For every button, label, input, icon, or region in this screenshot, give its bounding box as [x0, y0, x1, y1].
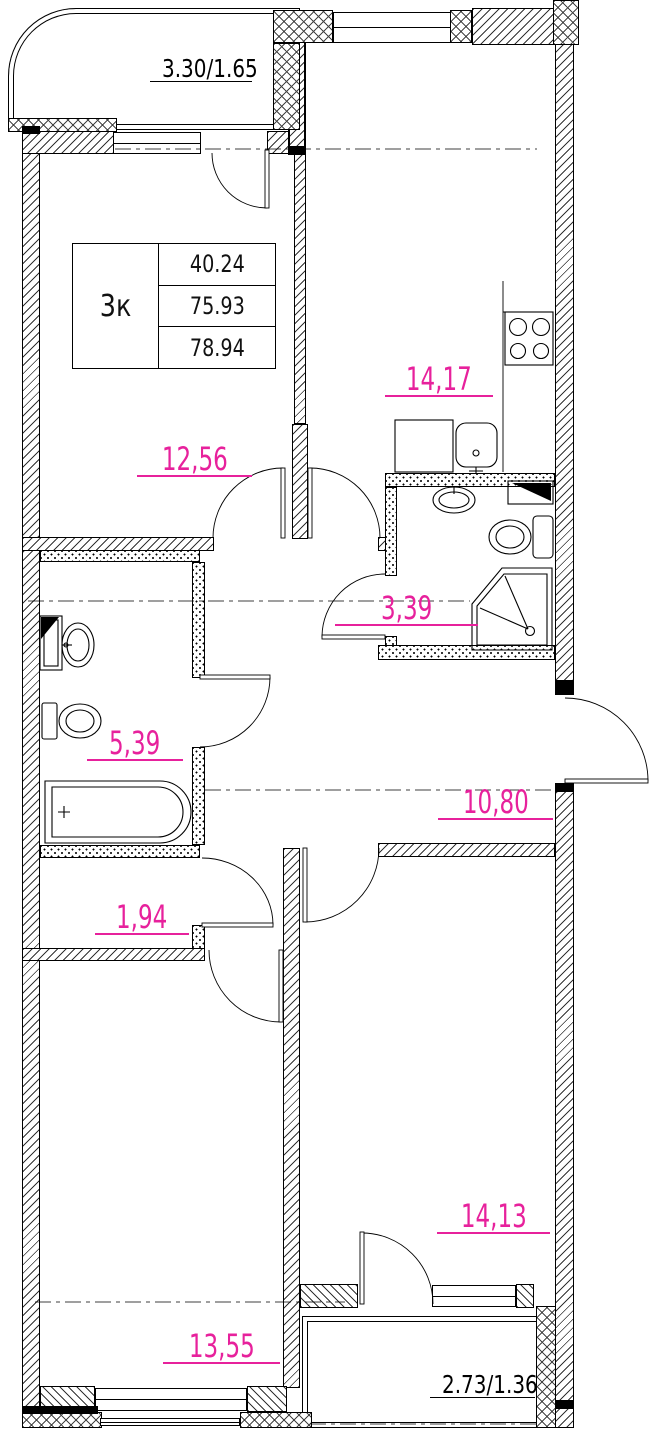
cabinet-icon	[395, 420, 453, 472]
area-label-balcony-bottom: 2.73/1.36	[430, 1372, 535, 1398]
area-label-kitchen: 14,17	[385, 363, 493, 397]
area-label-closet: 1,94	[95, 901, 189, 935]
door-kitchen	[308, 468, 380, 538]
door-balcony-top	[212, 150, 269, 208]
table-row: 75.93	[159, 286, 275, 328]
kitchen-counter-line	[503, 281, 553, 472]
door-bedroom-left	[209, 950, 283, 1022]
unit-info-table: 3к 40.24 75.93 78.94	[72, 243, 276, 369]
unit-type-label: 3к	[100, 289, 132, 324]
area-label-hall: 10,80	[438, 786, 553, 820]
area-label-living: 12,56	[137, 443, 252, 477]
toilet-icon	[489, 516, 553, 558]
door-living	[213, 468, 285, 538]
shower-tray-icon	[472, 568, 552, 650]
door-balcony-bottom	[360, 1232, 433, 1304]
bathtub-icon	[45, 781, 191, 843]
floor-plan: 3к 40.24 75.93 78.94 3.30/1.65 14,17 12,…	[0, 0, 655, 1436]
bath-sink-icon	[433, 487, 475, 513]
unit-type-cell: 3к	[73, 244, 159, 368]
door-wc	[200, 675, 270, 747]
stove-icon	[505, 312, 553, 365]
area-label-bedroom-left: 13,55	[163, 1330, 280, 1364]
plan-linework	[0, 0, 655, 1436]
area-label-bathroom: 3,39	[335, 592, 478, 626]
kitchen-sink-icon	[456, 423, 497, 474]
door-entrance	[565, 698, 648, 783]
door-bedroom-right	[303, 848, 379, 922]
vent-shaft-icon	[508, 481, 553, 504]
table-row: 40.24	[159, 244, 275, 286]
area-label-wc: 5,39	[87, 727, 183, 761]
unit-areas-column: 40.24 75.93 78.94	[159, 244, 275, 368]
table-row: 78.94	[159, 327, 275, 368]
area-label-bedroom-right: 14,13	[437, 1200, 550, 1234]
vent-shaft-icon	[40, 616, 62, 670]
door-closet	[202, 858, 273, 927]
area-label-balcony-top: 3.30/1.65	[150, 56, 252, 82]
wc-sink-icon	[62, 623, 94, 667]
